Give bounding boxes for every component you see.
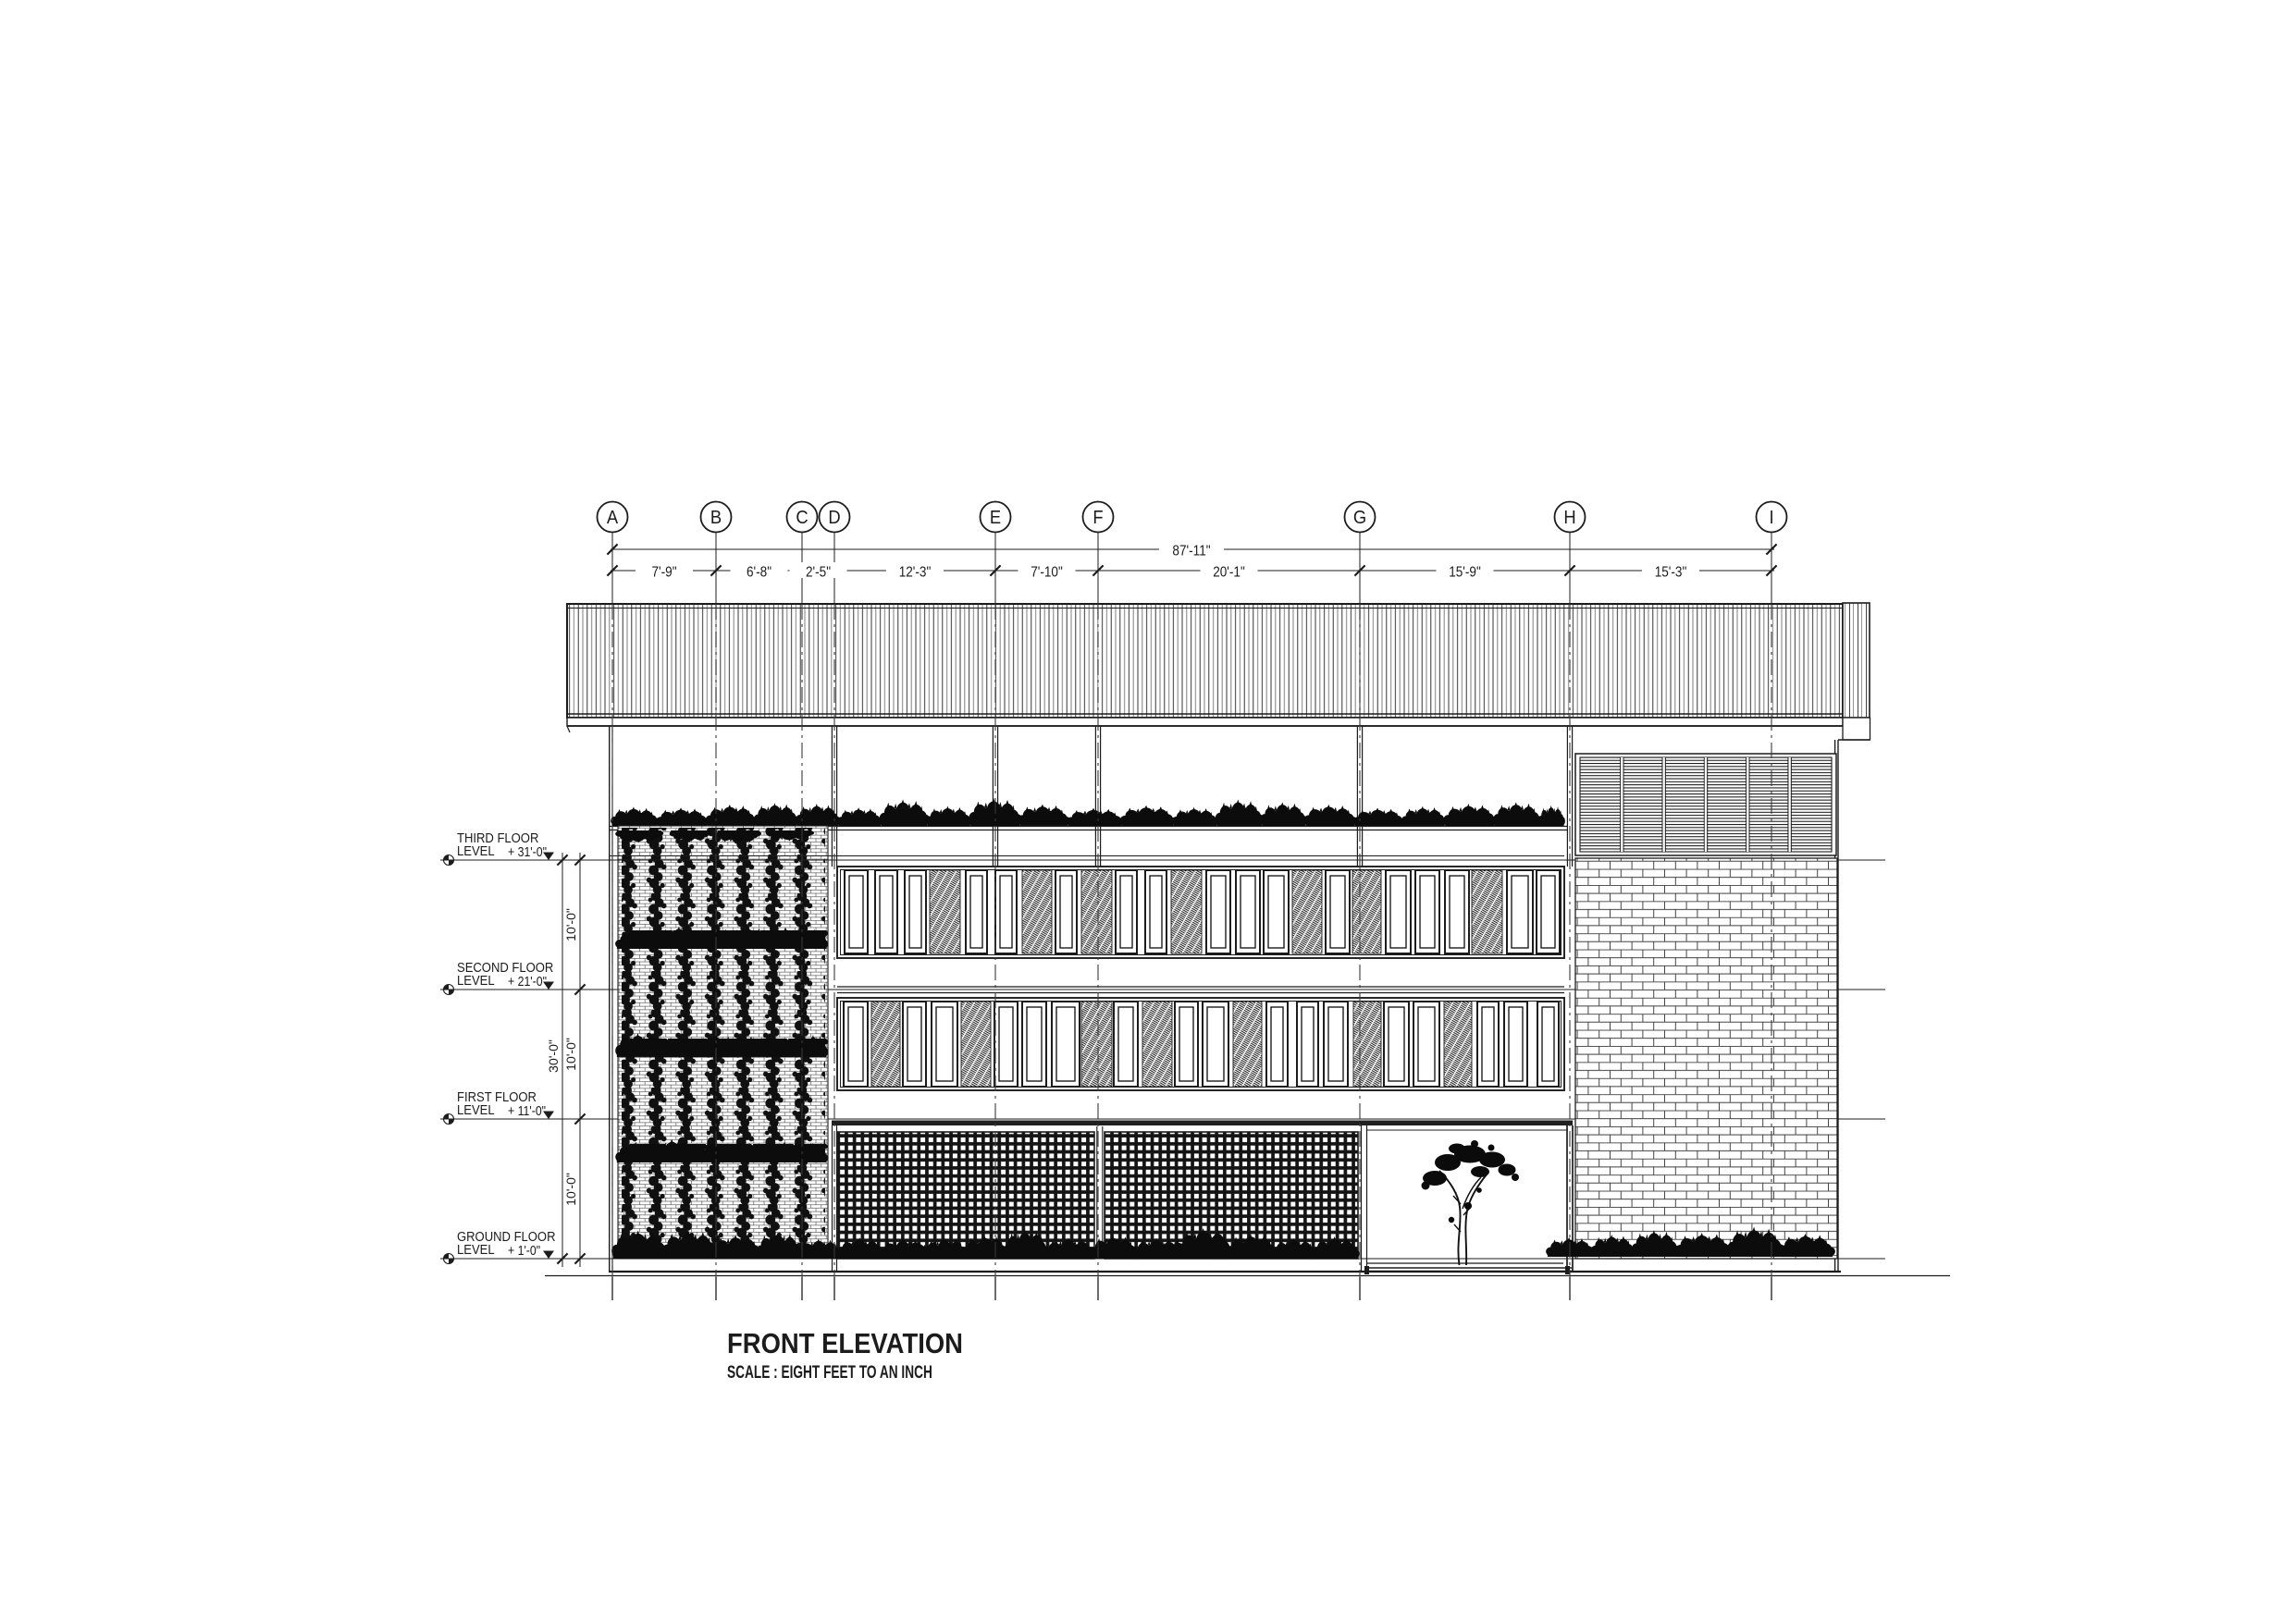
svg-text:I: I xyxy=(1769,508,1773,528)
svg-text:10'-0": 10'-0" xyxy=(563,1038,578,1071)
svg-text:H: H xyxy=(1563,508,1575,528)
svg-text:LEVEL: LEVEL xyxy=(457,843,495,858)
svg-text:6'-8": 6'-8" xyxy=(747,565,772,581)
svg-text:12'-3": 12'-3" xyxy=(899,565,932,581)
svg-text:FRONT ELEVATION: FRONT ELEVATION xyxy=(727,1329,963,1360)
svg-text:LEVEL: LEVEL xyxy=(457,1242,495,1257)
svg-text:LEVEL: LEVEL xyxy=(457,973,495,988)
svg-text:+ 11'-0": + 11'-0" xyxy=(508,1103,546,1118)
svg-text:10'-0": 10'-0" xyxy=(563,908,578,941)
svg-text:30'-0": 30'-0" xyxy=(546,1039,561,1073)
svg-text:A: A xyxy=(607,508,618,528)
svg-text:B: B xyxy=(710,508,722,528)
svg-text:F: F xyxy=(1092,508,1103,528)
svg-text:7'-9": 7'-9" xyxy=(651,565,676,581)
svg-text:15'-9": 15'-9" xyxy=(1449,565,1481,581)
svg-text:D: D xyxy=(828,508,840,528)
svg-text:+ 21'-0": + 21'-0" xyxy=(508,974,547,989)
svg-text:10'-0": 10'-0" xyxy=(563,1173,578,1206)
svg-text:7'-10": 7'-10" xyxy=(1031,565,1063,581)
svg-text:SCALE : EIGHT FEET TO AN INCH: SCALE : EIGHT FEET TO AN INCH xyxy=(727,1362,932,1383)
svg-text:G: G xyxy=(1353,508,1366,528)
svg-text:C: C xyxy=(796,508,808,528)
svg-text:2'-5": 2'-5" xyxy=(806,565,831,581)
svg-text:20'-1": 20'-1" xyxy=(1213,565,1245,581)
svg-text:LEVEL: LEVEL xyxy=(457,1102,495,1117)
svg-text:+ 31'-0": + 31'-0" xyxy=(508,844,547,859)
svg-text:E: E xyxy=(990,508,1001,528)
svg-text:87'-11": 87'-11" xyxy=(1172,544,1210,559)
svg-text:15'-3": 15'-3" xyxy=(1655,565,1687,581)
svg-text:+ 1'-0": + 1'-0" xyxy=(508,1243,540,1258)
